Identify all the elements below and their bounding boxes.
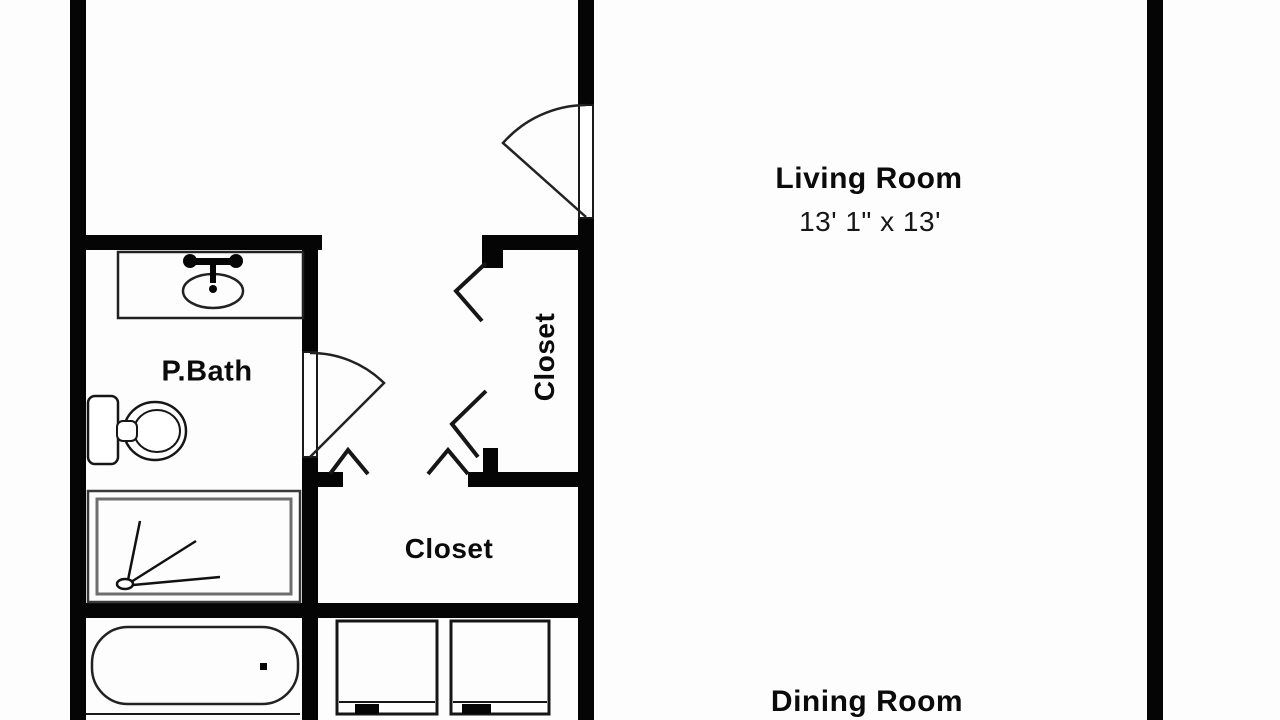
- wall-bath-right-lower: [302, 457, 318, 720]
- faucet-handle-right: [229, 254, 243, 268]
- bifold-door-icon: [428, 450, 468, 474]
- living-room-dimensions: 13' 1" x 13': [799, 206, 941, 238]
- wall-entry-upper: [578, 0, 594, 105]
- wall-lower-closet-stub-up: [483, 448, 498, 487]
- faucet-spout: [210, 260, 216, 283]
- toilet: [88, 396, 186, 464]
- tub-drain: [260, 663, 267, 670]
- bifold-door-icon: [452, 391, 486, 457]
- bathtub: [92, 627, 298, 704]
- bifold-closet-doors: [330, 263, 486, 474]
- living-room-label: Living Room: [775, 162, 962, 196]
- vanity-sink: [118, 252, 303, 318]
- toilet-tank: [88, 396, 118, 464]
- bifold-door-icon: [456, 263, 486, 321]
- primary-bath-label: P.Bath: [161, 356, 252, 389]
- dining-room-label: Dining Room: [771, 685, 963, 719]
- bifold-door-icon: [330, 450, 368, 474]
- shower-pan-outer: [88, 491, 300, 602]
- floor-plan: Living Room 13' 1" x 13' P.Bath Closet C…: [0, 0, 1280, 720]
- wall-bath-top: [70, 235, 322, 250]
- wall-laundry-divider: [70, 603, 594, 618]
- washer-outline: [337, 621, 437, 714]
- bath-door-swing: [310, 353, 384, 457]
- dryer-outline: [451, 621, 549, 714]
- bath-door-jamb: [303, 352, 317, 457]
- washer: [337, 621, 437, 714]
- tub-outline: [92, 627, 298, 704]
- shower-drain: [117, 579, 133, 589]
- wall-bath-right-upper: [302, 250, 318, 352]
- lower-closet-label: Closet: [405, 533, 494, 565]
- entry-swing-door: [503, 105, 593, 218]
- entry-door-swing: [503, 105, 586, 217]
- shower: [88, 491, 300, 602]
- faucet-handle-left: [183, 254, 197, 268]
- shower-drain-line: [133, 577, 220, 585]
- washer-handle: [355, 704, 379, 714]
- dryer: [451, 621, 549, 714]
- wall-right-outer: [1147, 0, 1163, 720]
- side-closet-label: Closet: [529, 313, 561, 402]
- toilet-hinge: [117, 421, 137, 441]
- shower-drain-line: [128, 521, 140, 580]
- wall-entry-lower: [578, 218, 594, 720]
- entry-door-jamb: [579, 105, 593, 218]
- sink-drain: [209, 285, 217, 293]
- dryer-handle: [462, 704, 491, 714]
- shower-drain-line: [131, 541, 196, 582]
- bath-swing-door: [303, 352, 384, 457]
